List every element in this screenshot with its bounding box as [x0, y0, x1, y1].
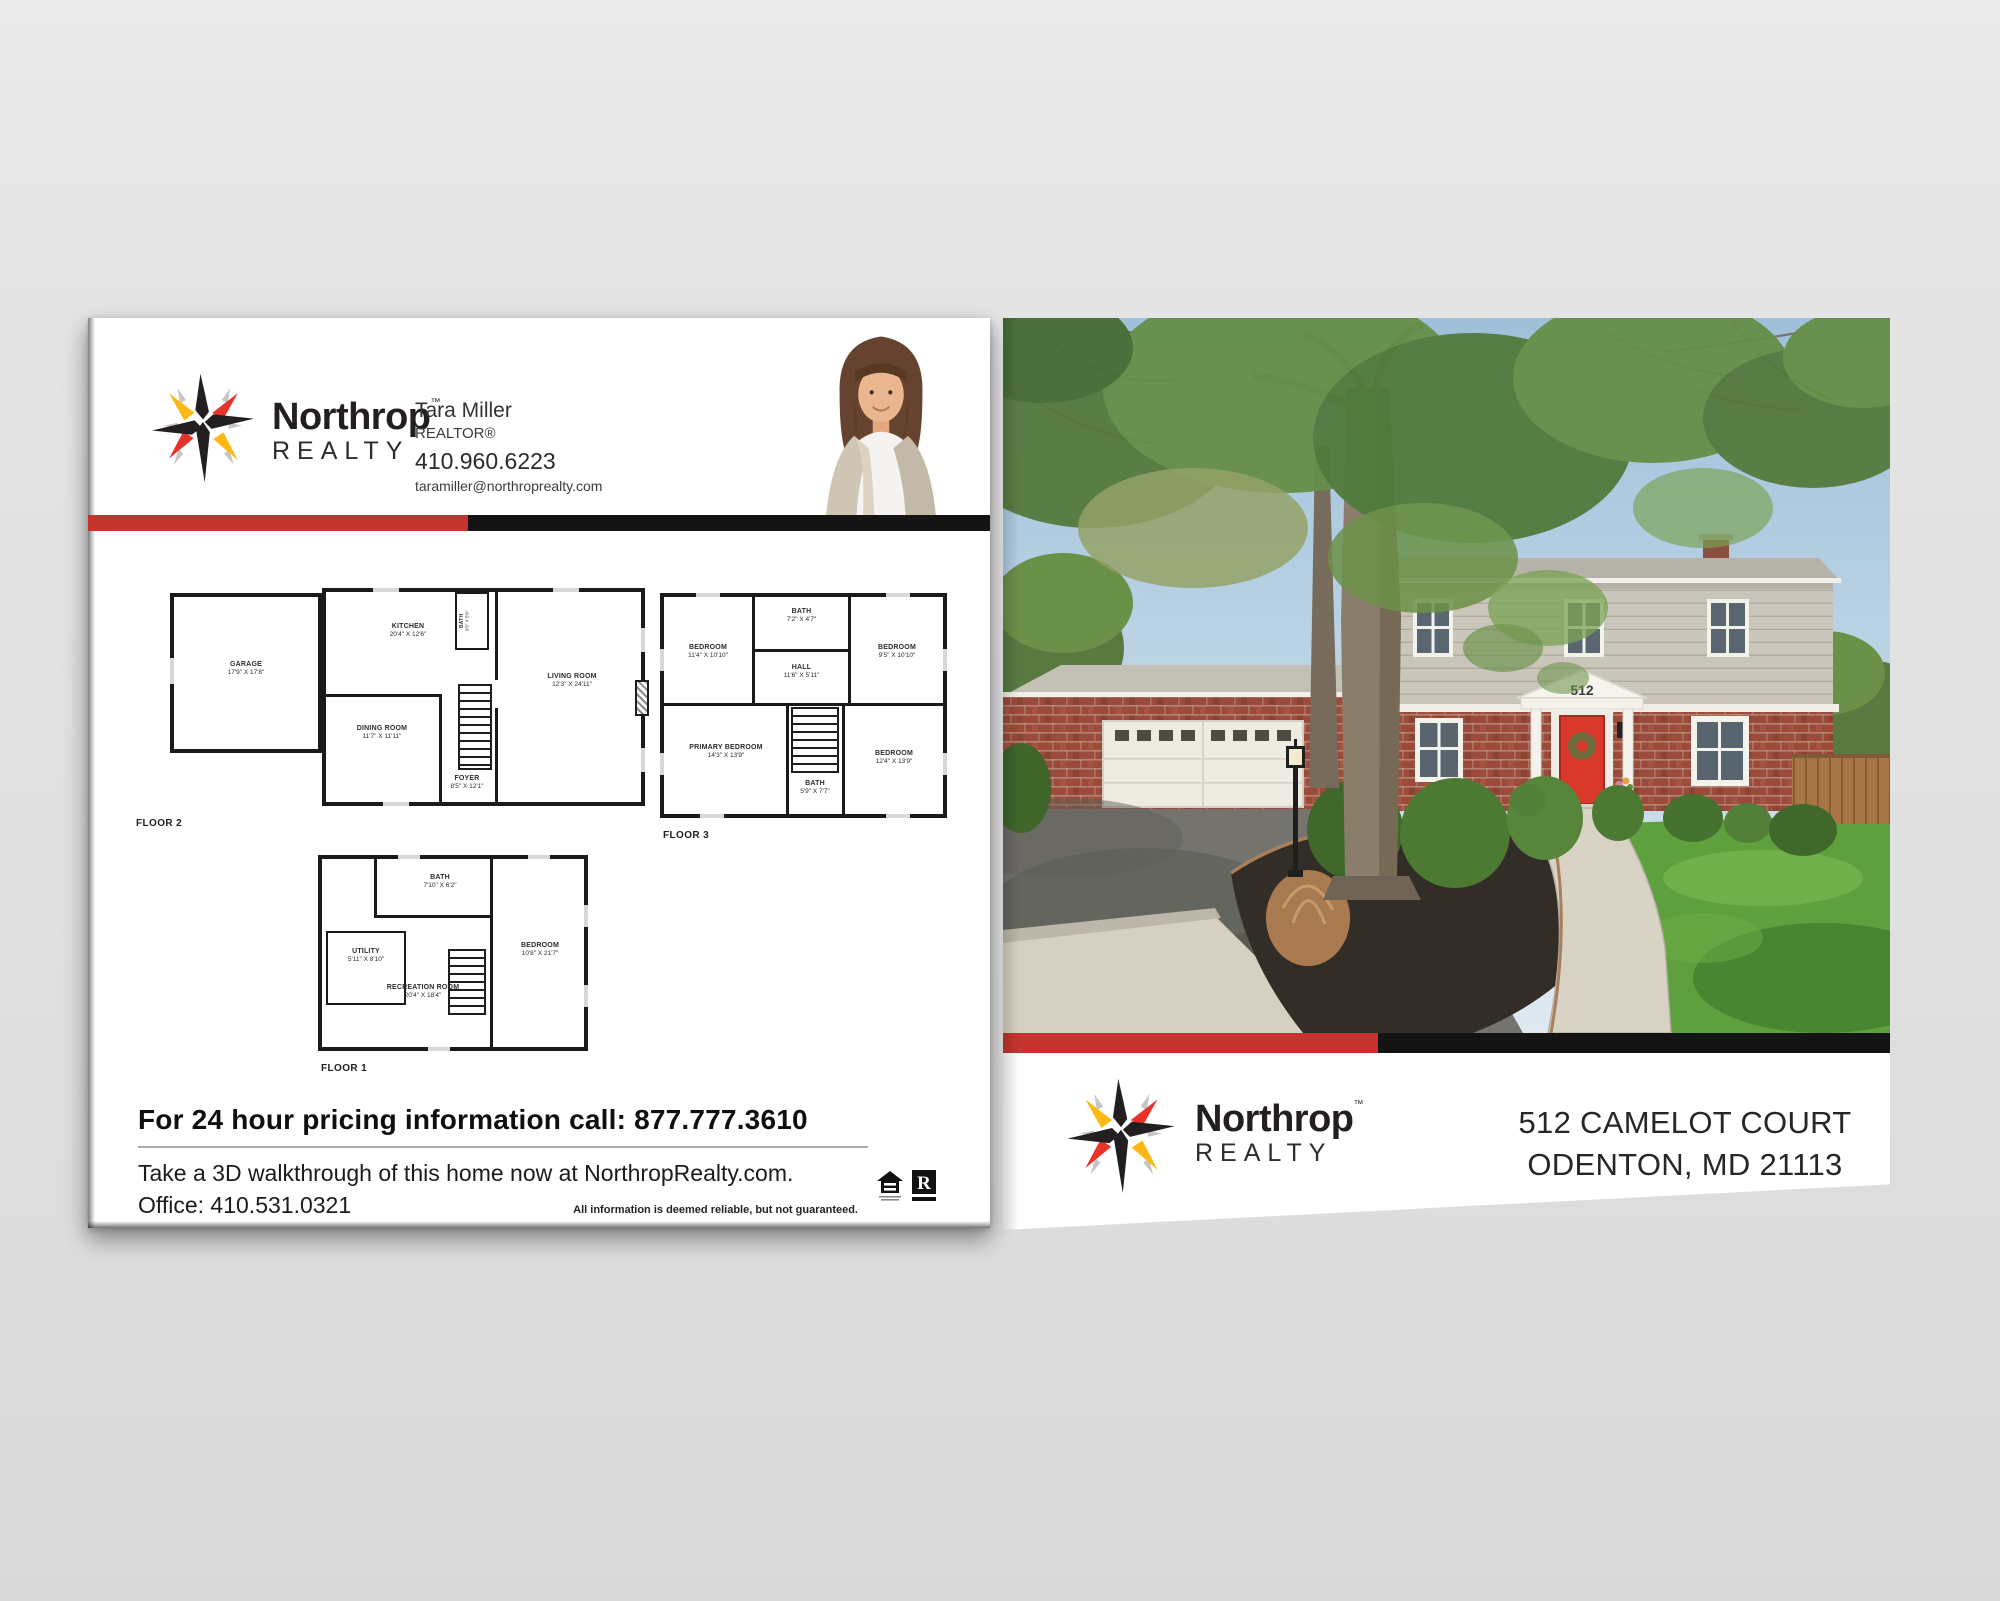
walkthrough-line: Take a 3D walkthrough of this home now a… [138, 1160, 793, 1187]
floor-3-label: FLOOR 3 [663, 830, 709, 841]
agent-info: Tara Miller REALTOR® 410.960.6223 tarami… [415, 398, 602, 494]
floor-plan-floor-2: GARAGE 17'9" X 17'8" KITCHEN 20'4" X 12'… [133, 588, 645, 806]
northrop-compass-logo-icon [152, 372, 254, 484]
room-label: BEDROOM 10'8" X 21'7" [494, 941, 586, 959]
room-name: BEDROOM [664, 643, 752, 652]
room-label: UTILITY 5'11" X 8'10" [328, 947, 404, 965]
brand-wordmark: Northrop™ REALTY [1195, 1100, 1363, 1166]
room-name: BATH [390, 873, 490, 882]
room-dims: 8'5" X 12'1" [431, 783, 503, 791]
garage-door [1103, 721, 1303, 807]
room-name: BEDROOM [494, 941, 586, 950]
room-name: RECREATION ROOM [358, 983, 488, 992]
brochure-left-page: Northrop™ REALTY Tara Miller REALTOR® 41… [88, 318, 990, 1228]
room-dims: 5'11" X 8'10" [328, 956, 404, 964]
room-dims: 11'4" X 10'10" [664, 652, 752, 660]
room-label: BEDROOM 12'4" X 13'9" [844, 749, 944, 767]
room-dims: 11'6" X 5'11" [754, 672, 849, 680]
agent-portrait [806, 322, 956, 515]
room-name: PRIMARY BEDROOM [666, 743, 786, 752]
room-dims: 20'4" X 18'4" [358, 992, 488, 1000]
accent-bar [1003, 1033, 1890, 1053]
room-name: FOYER [431, 774, 503, 783]
room-label: BEDROOM 11'4" X 10'10" [664, 643, 752, 661]
room-label: BATH 7'2" X 4'7" [754, 607, 849, 625]
room-label: FOYER 8'5" X 12'1" [431, 774, 503, 792]
realtor-icon: R [911, 1170, 937, 1204]
divider-rule [138, 1146, 868, 1148]
address-line-1: 512 CAMELOT COURT [1475, 1102, 1895, 1144]
room-name: UTILITY [328, 947, 404, 956]
trademark-symbol: ™ [1354, 1099, 1364, 1110]
room-label: HALL 11'6" X 5'11" [754, 663, 849, 681]
brand-subname: REALTY [1195, 1141, 1363, 1166]
room-label: BATH 5'9" X 7'7" [787, 779, 843, 797]
floor-2-label: FLOOR 2 [136, 818, 182, 829]
stairs [791, 707, 839, 773]
accent-bar-red-segment [88, 515, 468, 531]
equal-housing-icon [876, 1170, 904, 1204]
brand-name-text: Northrop [1195, 1098, 1354, 1140]
agent-phone: 410.960.6223 [415, 448, 602, 475]
room-dims: 11'7" X 11'11" [326, 733, 438, 741]
room-dims: 9'5" X 10'10" [850, 652, 944, 660]
brand-name: Northrop™ [1195, 1100, 1363, 1138]
agent-headshot-photo [806, 322, 956, 515]
room-label: RECREATION ROOM 20'4" X 18'4" [358, 983, 488, 1001]
room-name: DINING ROOM [326, 724, 438, 733]
desk-background: Northrop™ REALTY Tara Miller REALTOR® 41… [0, 0, 2000, 1601]
room-dims: 9'5" X 5'6" [466, 596, 471, 646]
room-label: DINING ROOM 11'7" X 11'11" [326, 724, 438, 742]
room-dims: 5'9" X 7'7" [787, 788, 843, 796]
room-name: GARAGE [170, 660, 322, 669]
room-dims: 7'2" X 4'7" [754, 616, 849, 624]
svg-text:R: R [917, 1173, 931, 1194]
property-address: 512 CAMELOT COURT ODENTON, MD 21113 [1475, 1102, 1895, 1186]
stairs [448, 949, 486, 1015]
room-label: BEDROOM 9'5" X 10'10" [850, 643, 944, 661]
room-name: HALL [754, 663, 849, 672]
room-dims: 10'8" X 21'7" [494, 950, 586, 958]
accent-bar [88, 515, 990, 531]
room-dims: 7'10" X 6'2" [390, 882, 490, 890]
compliance-badges: R [876, 1170, 937, 1204]
room-label: LIVING ROOM 12'3" X 24'11" [501, 672, 643, 690]
room-name: BEDROOM [850, 643, 944, 652]
room-dims: 17'9" X 17'8" [170, 669, 322, 677]
northrop-compass-logo-icon [1065, 1078, 1177, 1194]
room-label: BATH 7'10" X 6'2" [390, 873, 490, 891]
accent-bar-red-segment [1003, 1033, 1378, 1053]
pricing-headline: For 24 hour pricing information call: 87… [138, 1104, 808, 1136]
room-label: PRIMARY BEDROOM 14'3" X 13'9" [666, 743, 786, 761]
stairs [458, 684, 492, 770]
room-dims: 12'4" X 13'9" [844, 758, 944, 766]
floor-plan-floor-3: BEDROOM 11'4" X 10'10" BATH 7'2" X 4'7" … [660, 593, 947, 818]
brochure-right-page: 512 [1003, 318, 1890, 1230]
room-name: BATH [787, 779, 843, 788]
room-name: BATH [754, 607, 849, 616]
floor-1-label: FLOOR 1 [321, 1063, 367, 1074]
room-label: GARAGE 17'9" X 17'8" [170, 660, 322, 678]
property-photo: 512 [1003, 318, 1890, 1033]
office-phone-line: Office: 410.531.0321 [138, 1192, 351, 1219]
room-label: BATH 9'5" X 5'6" [460, 596, 486, 646]
house-photo-illustration: 512 [1003, 318, 1890, 1033]
address-line-2: ODENTON, MD 21113 [1475, 1144, 1895, 1186]
agent-email: taramiller@northroprealty.com [415, 478, 602, 494]
floor-plan-floor-1: BATH 7'10" X 6'2" UTILITY 5'11" X 8'10" … [318, 855, 588, 1051]
room-name: LIVING ROOM [501, 672, 643, 681]
brand-name-text: Northrop [272, 396, 431, 438]
room-dims: 12'3" X 24'11" [501, 681, 643, 689]
agent-title: REALTOR® [415, 425, 602, 442]
agent-name: Tara Miller [415, 398, 602, 423]
disclaimer-text: All information is deemed reliable, but … [508, 1204, 858, 1216]
room-name: BEDROOM [844, 749, 944, 758]
room-dims: 14'3" X 13'9" [666, 752, 786, 760]
